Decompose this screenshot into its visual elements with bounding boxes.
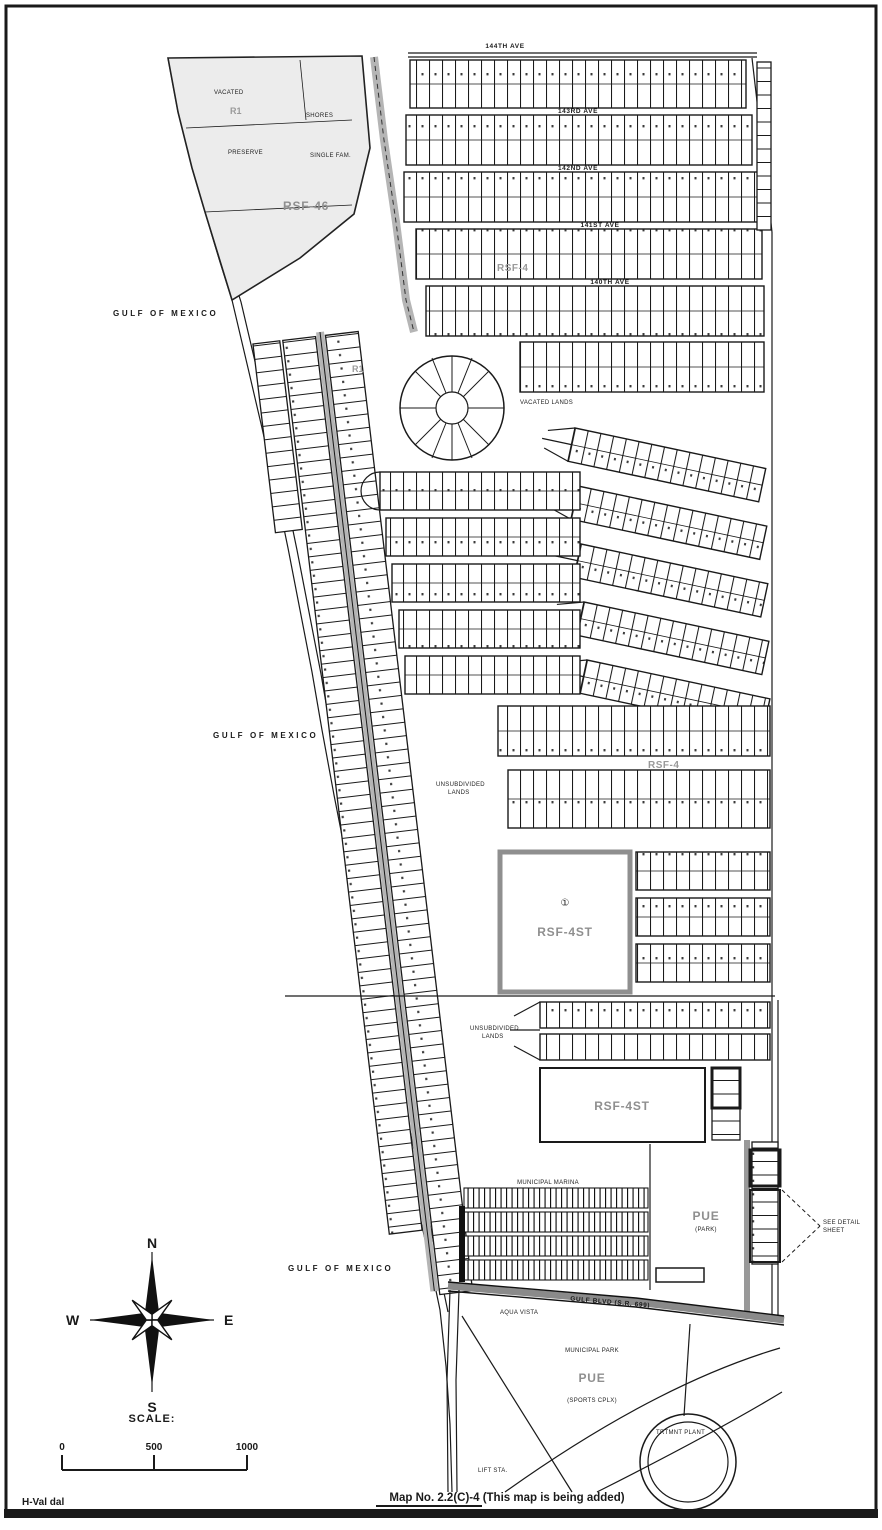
street-label-row3: 141ST AVE <box>581 222 620 229</box>
plat-map-canvas: VACATED R1 PRESERVE SHORES SINGLE FAM. R… <box>0 0 882 1530</box>
scale-tick-0: 0 <box>59 1442 65 1453</box>
area-label-muni-park: MUNICIPAL PARK <box>565 1348 619 1354</box>
map-caption: Map No. 2.2(C)-4 (This map is being adde… <box>389 1492 624 1504</box>
area-label-lift: LIFT STA. <box>478 1468 508 1474</box>
zone-label-r1-top: R1 <box>230 106 242 116</box>
street-label-row4: 140TH AVE <box>590 279 629 286</box>
street-label-top: 144TH AVE <box>485 43 524 50</box>
area-label-plant: TRTMNT PLANT <box>656 1430 705 1436</box>
zone-label-rsf4st-south: RSF-4ST <box>594 1099 650 1113</box>
area-label-vacated-lands: VACATED LANDS <box>520 400 573 406</box>
water-label-middle: GULF OF MEXICO <box>213 731 318 740</box>
zone-label-rsf4st-big: RSF-4ST <box>537 925 593 939</box>
area-label-preserve: PRESERVE <box>228 150 263 156</box>
zone-label-r1-mid: R1 <box>352 364 364 374</box>
zone-label-rsf4-lower: RSF-4 <box>648 760 679 771</box>
water-label-upper: GULF OF MEXICO <box>113 309 218 318</box>
area-label-shores: SHORES <box>306 113 333 119</box>
street-label-row2: 142ND AVE <box>558 165 598 172</box>
water-label-lower: GULF OF MEXICO <box>288 1264 393 1273</box>
area-label-marina: MUNICIPAL MARINA <box>517 1180 579 1186</box>
area-label-aqua: AQUA VISTA <box>500 1310 538 1316</box>
scale-label: SCALE: <box>129 1413 176 1425</box>
compass-w: W <box>66 1312 80 1328</box>
area-label-unsub-a2: LANDS <box>448 790 470 796</box>
area-label-single-fam: SINGLE FAM. <box>310 153 351 159</box>
callout-sheet: SHEET <box>823 1228 845 1234</box>
zone-label-pue-east-sub: (PARK) <box>695 1227 717 1233</box>
compass-e: E <box>224 1312 233 1328</box>
zone-label-pue-south: PUE <box>578 1371 605 1385</box>
rsf4st-parcel-big: ① RSF-4ST <box>500 852 630 992</box>
zone-label-rsf4-upper: RSF-4 <box>497 263 528 274</box>
street-label-row1: 143RD AVE <box>558 108 598 115</box>
callout-see-detail: SEE DETAIL <box>823 1220 861 1226</box>
rows-east-of-parcel <box>636 852 770 982</box>
area-label-unsub-a1: UNSUBDIVIDED <box>436 782 485 788</box>
marker-one: ① <box>561 898 570 909</box>
scale-tick-500: 500 <box>146 1442 163 1453</box>
area-label-sports: (SPORTS CPLX) <box>567 1398 617 1404</box>
plat-map-page: VACATED R1 PRESERVE SHORES SINGLE FAM. R… <box>0 0 882 1530</box>
scale-tick-1000: 1000 <box>236 1442 259 1453</box>
area-label-vacated: VACATED <box>214 90 244 96</box>
zone-label-pue-east: PUE <box>692 1209 719 1223</box>
caption-block: Map No. 2.2(C)-4 (This map is being adde… <box>376 1492 625 1506</box>
area-label-unsub-b2: LANDS <box>482 1034 504 1040</box>
footer-code: H-Val dal <box>22 1497 64 1508</box>
compass-n: N <box>147 1235 157 1251</box>
area-label-unsub-b1: UNSUBDIVIDED <box>470 1026 519 1032</box>
zone-label-rsf46: RSF-46 <box>283 199 329 213</box>
